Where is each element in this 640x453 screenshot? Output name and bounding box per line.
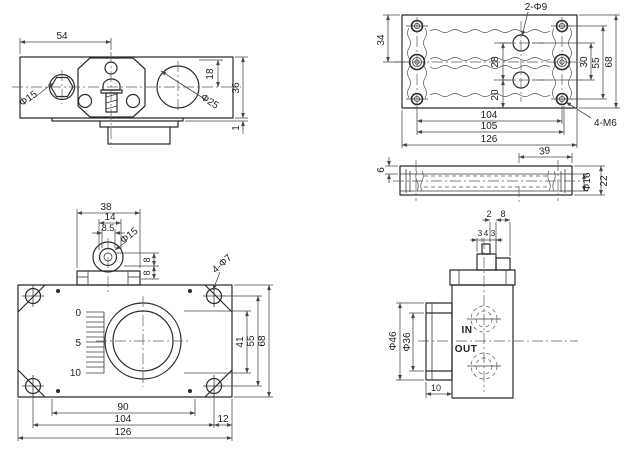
dim-18: 18 (205, 68, 216, 80)
scale-mark-0: 0 (75, 308, 81, 319)
dim-90: 90 (117, 402, 129, 413)
side-view-bottom-right: IN OUT Φ46 Φ36 10 2 8 3 4 3 (388, 209, 578, 398)
dim-104-plan: 104 (481, 110, 498, 121)
dim-phi46: Φ46 (388, 331, 399, 351)
front-view-bottom-left: 0 5 10 38 14 8.5 Φ15 (18, 202, 273, 441)
dim-8-side: 8 (500, 209, 505, 219)
dim-8-top: 8 (142, 257, 152, 262)
adjustment-scale (86, 312, 104, 373)
dim-10: 10 (431, 383, 441, 393)
dim-28: 28 (490, 56, 501, 68)
dim-6: 6 (376, 167, 387, 173)
dim-54: 54 (56, 31, 68, 42)
dim-39: 39 (538, 145, 551, 158)
dim-126-plan: 126 (481, 134, 498, 145)
label-phi15: Φ15 (18, 89, 40, 109)
dim-105-plan: 105 (481, 121, 498, 132)
technical-drawing-page: 54 18 36 1 Φ15 Φ25 (0, 0, 640, 453)
dim-phi36: Φ36 (402, 332, 413, 352)
dim-55-plan: 55 (591, 57, 602, 69)
dim-34: 34 (376, 34, 387, 46)
dim-41: 41 (235, 336, 246, 348)
dim-55-front: 55 (246, 335, 257, 347)
dim-12: 12 (217, 414, 229, 425)
drawing-canvas: 54 18 36 1 Φ15 Φ25 (0, 0, 640, 453)
dim-phi16: Φ16 (582, 172, 593, 192)
dim-68-plan: 68 (604, 56, 615, 68)
label-4-m6: 4-M6 (594, 118, 617, 129)
label-phi25: Φ25 (198, 92, 220, 112)
label-2-phi9: 2-Φ9 (525, 2, 548, 13)
dim-3b: 3 (491, 229, 496, 238)
dim-14: 14 (104, 212, 116, 223)
port-in-label: IN (462, 325, 473, 336)
dim-20: 20 (490, 89, 501, 101)
dim-30: 30 (579, 56, 590, 68)
dim-3a: 3 (478, 229, 483, 238)
dim-68-front: 68 (257, 335, 268, 347)
dim-22: 22 (599, 175, 610, 187)
dim-36: 36 (231, 82, 242, 94)
label-4-phi7: 4-Φ7 (210, 252, 234, 275)
front-view-top-left: 54 18 36 1 Φ15 Φ25 (12, 31, 248, 148)
dim-126-front: 126 (115, 427, 132, 438)
dim-2: 2 (486, 209, 491, 219)
plan-view-top-right: 2-Φ9 34 28 20 30 55 68 104 105 (376, 2, 620, 148)
side-section-middle-right: 39 Φ16 22 6 (376, 145, 610, 205)
dim-4: 4 (484, 229, 489, 238)
scale-mark-10: 10 (70, 368, 82, 379)
scale-mark-5: 5 (75, 338, 81, 349)
port-out-label: OUT (455, 344, 478, 355)
dim-104-front: 104 (115, 414, 132, 425)
label-knob-phi15: Φ15 (119, 226, 141, 247)
dim-8-5: 8.5 (102, 223, 115, 233)
dim-8-bottom: 8 (142, 270, 152, 275)
dim-1: 1 (231, 125, 242, 131)
